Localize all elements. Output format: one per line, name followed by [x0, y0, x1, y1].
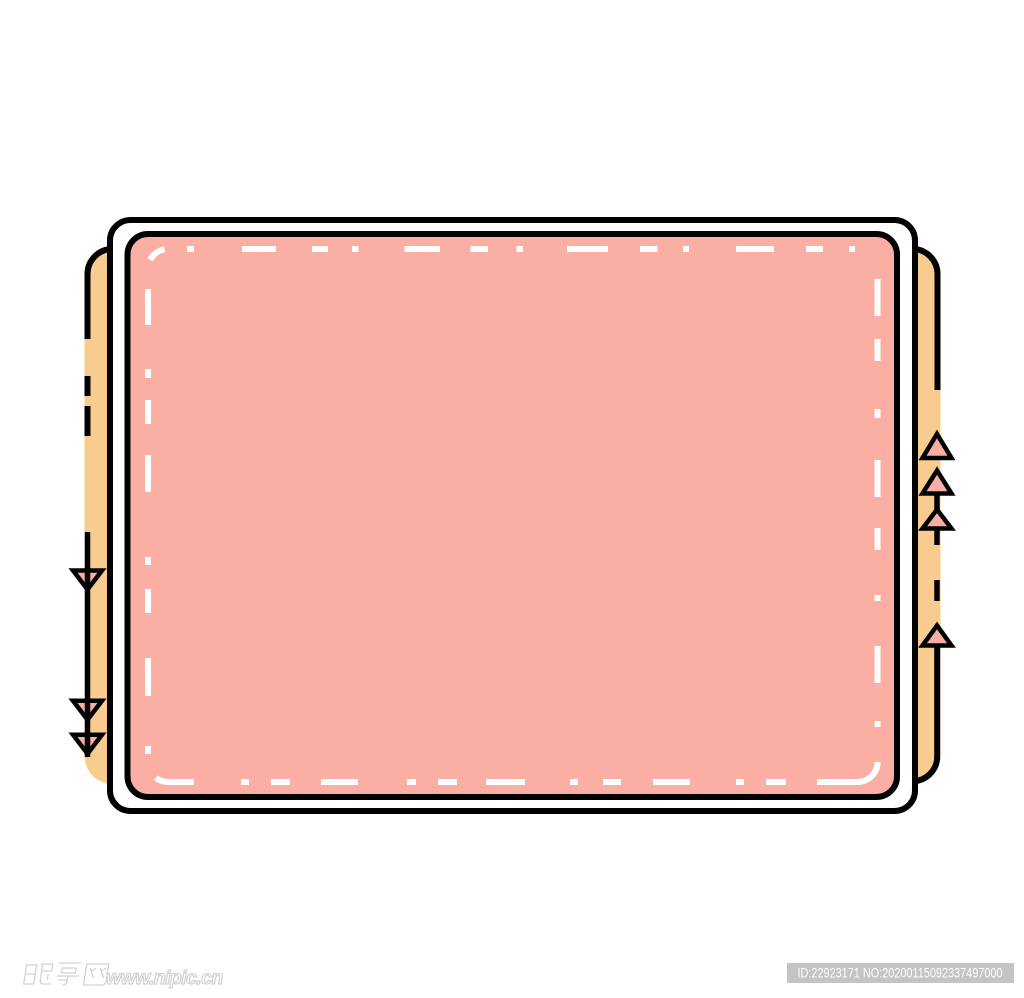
svg-text:ID:22923171 NO:202001150923374: ID:22923171 NO:20200115092337497000	[798, 966, 1003, 981]
svg-text:www.nipic.cn: www.nipic.cn	[106, 967, 223, 989]
